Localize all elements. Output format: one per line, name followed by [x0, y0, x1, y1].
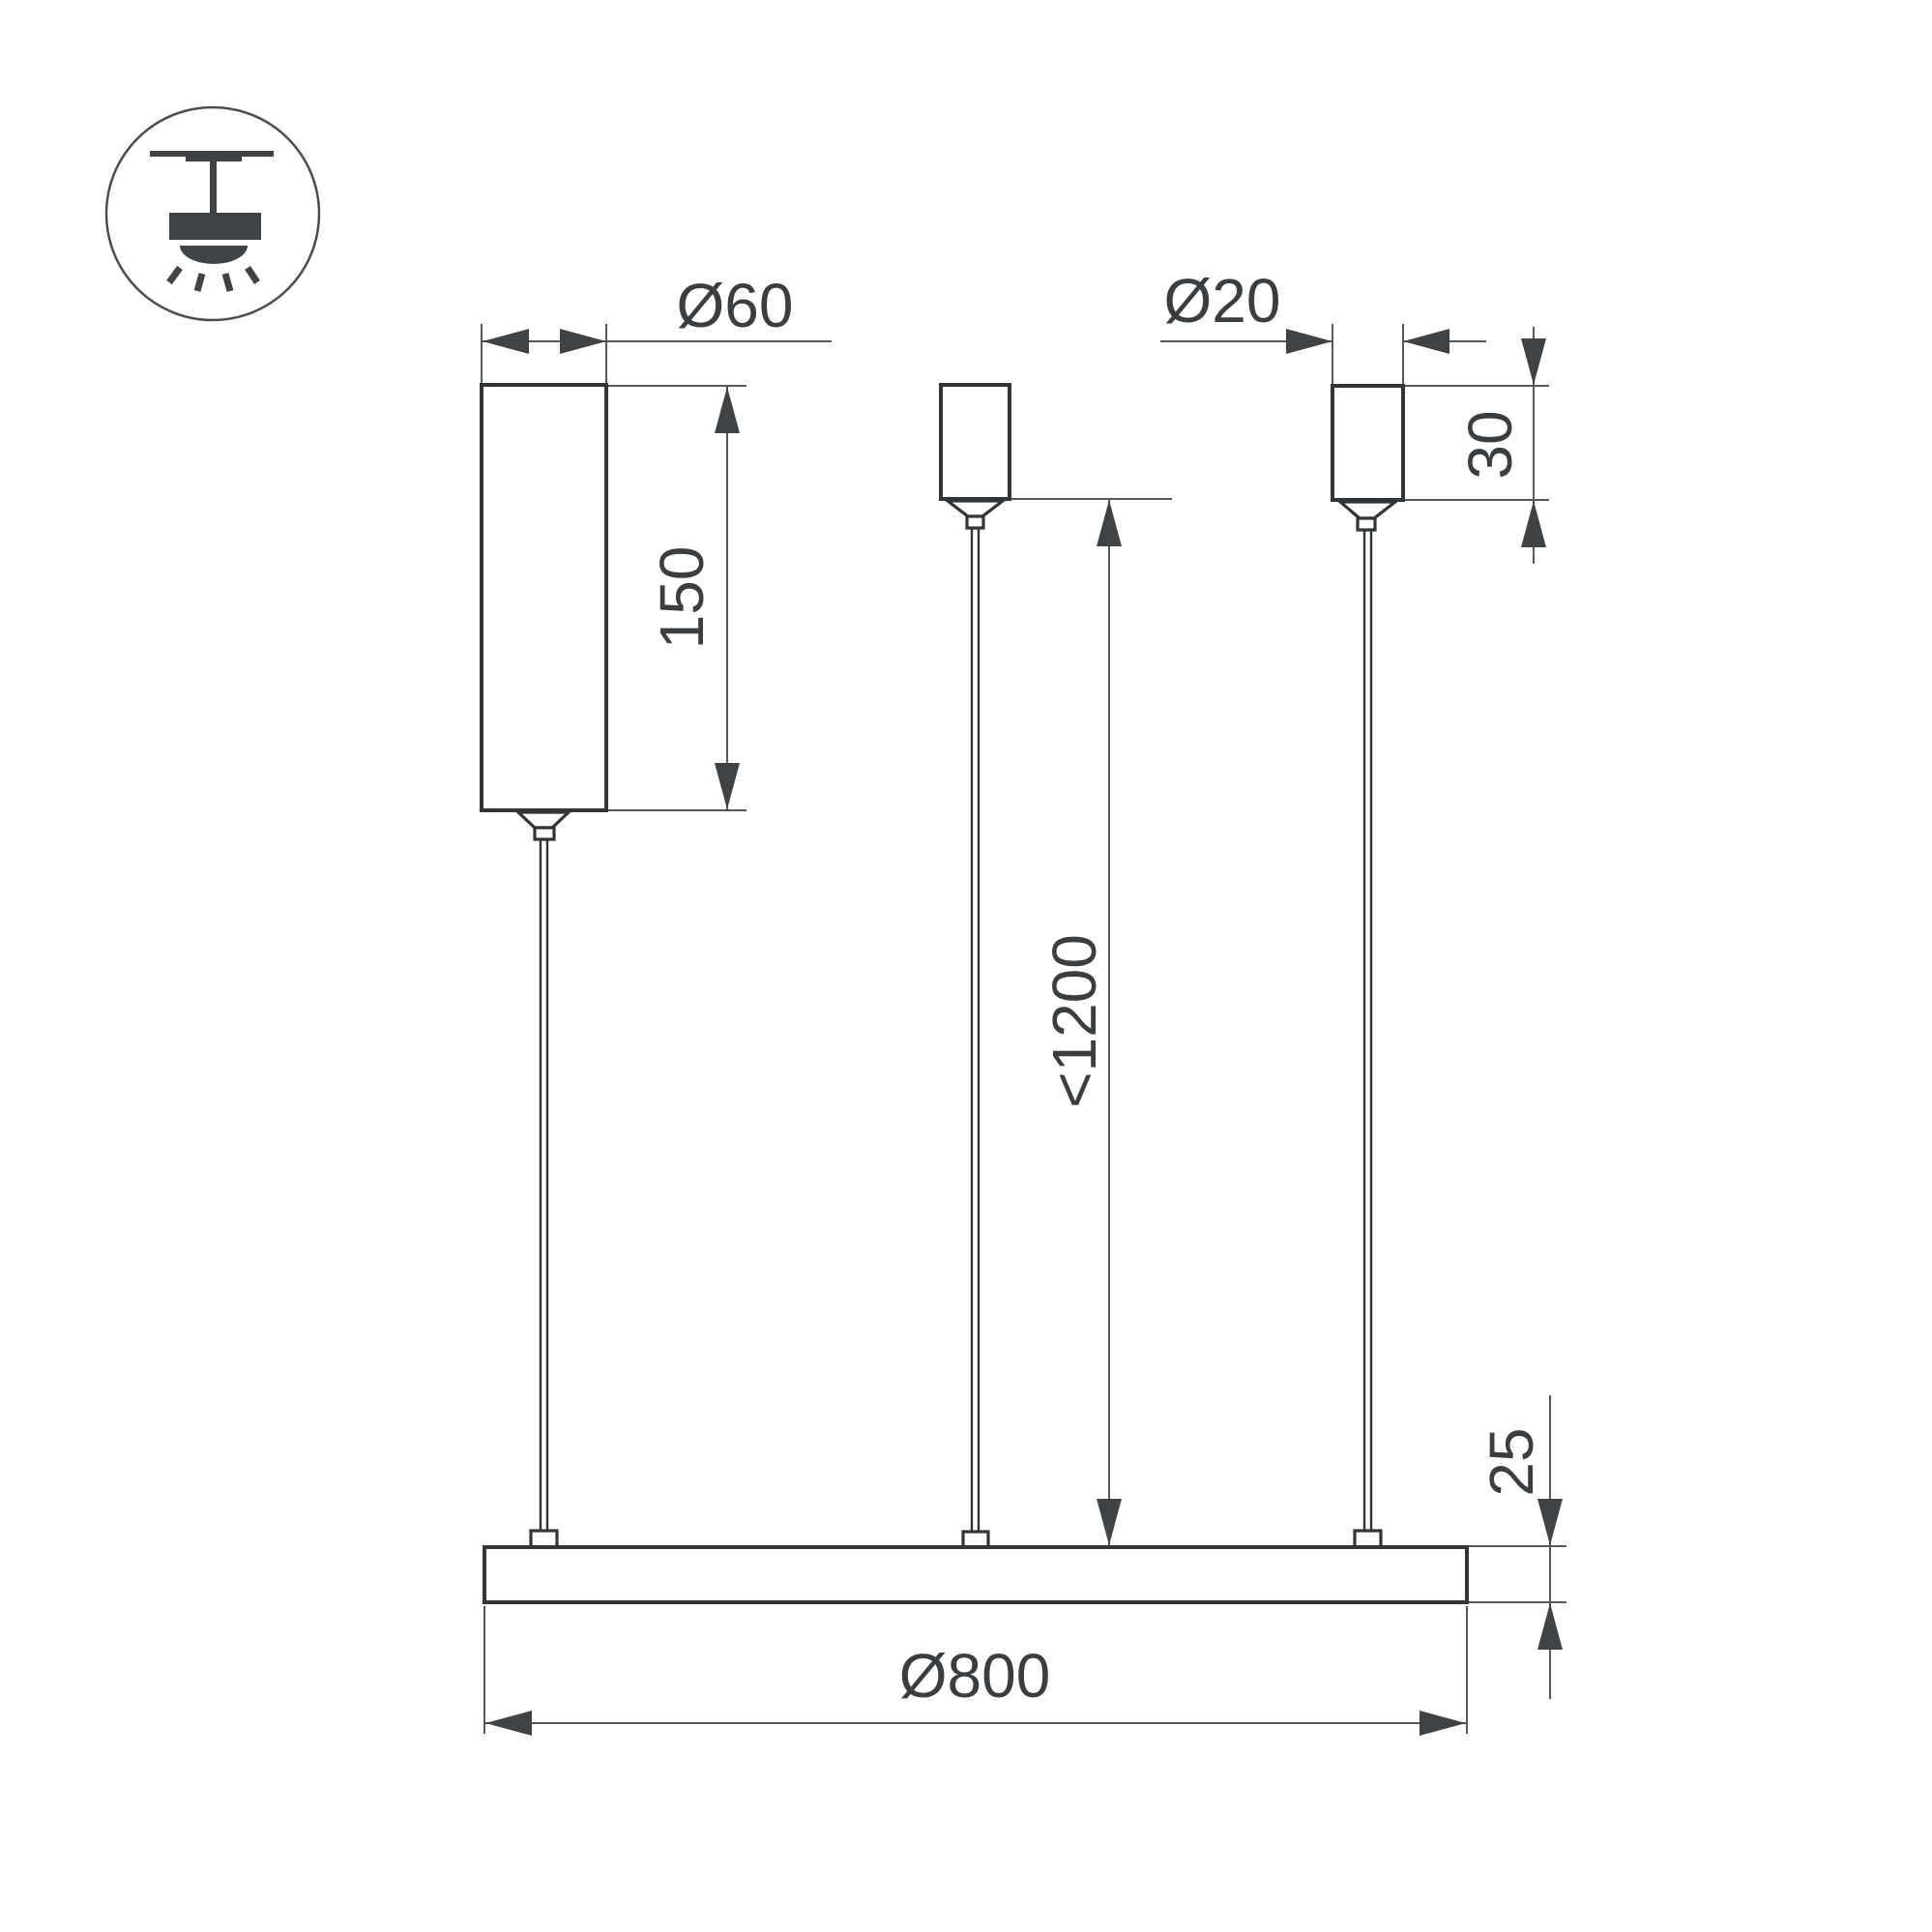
- icon-light-dome: [180, 246, 248, 264]
- icon-lamp-body: [169, 213, 261, 240]
- arrow-left-icon: [485, 1711, 532, 1736]
- canopy-driver-box: [482, 385, 606, 1547]
- arrow-right-icon: [1420, 1711, 1466, 1736]
- wire-connector: [531, 1531, 557, 1547]
- icon-light-ray: [248, 268, 257, 282]
- dimension-label: Ø20: [1164, 266, 1281, 336]
- canopy-cone: [518, 812, 569, 828]
- dimension-canopy-diameter: Ø60: [482, 271, 832, 383]
- suspension-grip: [1358, 518, 1375, 530]
- dimension-label: Ø800: [899, 1641, 1051, 1711]
- wire-connector: [963, 1532, 988, 1547]
- suspension-cone: [948, 501, 1003, 516]
- dimension-label: 30: [1455, 410, 1525, 479]
- canopy-body: [482, 385, 606, 810]
- pendant-ceiling-light-icon: [106, 107, 319, 320]
- right-suspension: [1332, 386, 1403, 1547]
- dimension-ring-diameter: Ø800: [484, 1606, 1467, 1736]
- dimension-grip-height: 30: [1405, 327, 1549, 564]
- dimension-label: 150: [647, 546, 717, 650]
- arrow-right-icon: [560, 329, 606, 354]
- dimension-grip-diameter: Ø20: [1160, 266, 1486, 384]
- arrow-left-icon: [1403, 329, 1449, 354]
- suspension-cone: [1340, 502, 1395, 518]
- dimension-label: Ø60: [677, 271, 794, 340]
- middle-suspension: [941, 385, 1010, 1547]
- icon-stem: [210, 161, 217, 215]
- arrow-right-icon: [1286, 329, 1332, 354]
- suspension-cylinder: [941, 385, 1010, 499]
- arrow-up-icon: [1521, 501, 1546, 547]
- icon-track-bar: [186, 155, 242, 161]
- dimension-label: 25: [1477, 1427, 1546, 1496]
- icon-light-ray: [197, 274, 202, 291]
- dimension-label: <1200: [1039, 934, 1109, 1108]
- dimension-profile-thickness: 25: [1469, 1395, 1566, 1699]
- icon-light-ray: [169, 268, 180, 282]
- icon-light-ray: [225, 274, 230, 291]
- arrow-down-icon: [715, 763, 740, 809]
- arrow-left-icon: [483, 329, 529, 354]
- arrow-up-icon: [1097, 500, 1122, 546]
- suspension-cylinder: [1332, 386, 1403, 500]
- arrow-down-icon: [1521, 338, 1546, 385]
- canopy-grip: [535, 828, 554, 839]
- arrow-up-icon: [715, 387, 740, 433]
- ring-profile-bar: [484, 1547, 1467, 1602]
- arrow-up-icon: [1537, 1603, 1563, 1650]
- arrow-down-icon: [1097, 1499, 1122, 1545]
- dimension-canopy-height: 150: [608, 386, 746, 810]
- arrow-down-icon: [1537, 1499, 1563, 1545]
- dimension-suspension-length: <1200: [1011, 499, 1172, 1545]
- dimension-drawing-canvas: Ø60 150 Ø20 30 <1200: [0, 0, 1932, 1932]
- suspension-grip: [967, 516, 983, 528]
- wire-connector: [1355, 1531, 1381, 1547]
